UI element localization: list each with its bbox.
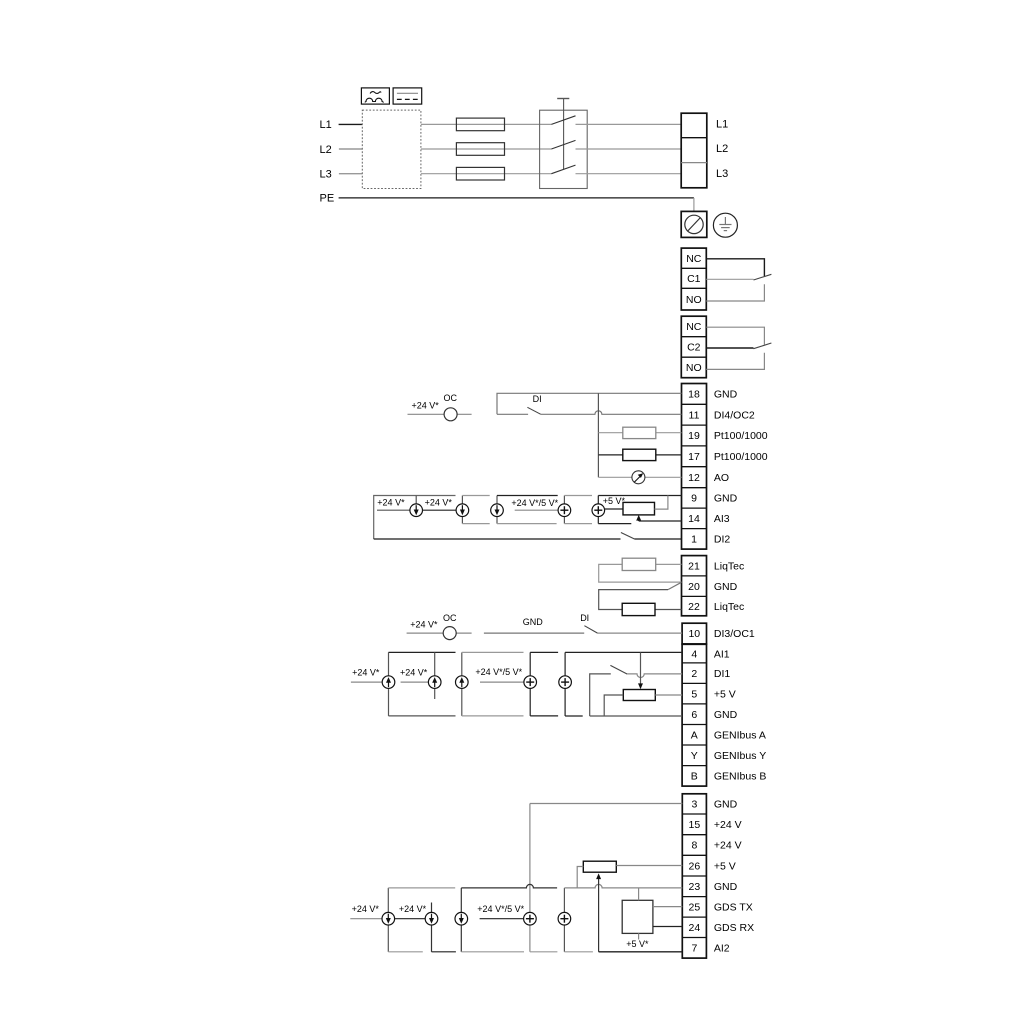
svg-text:Y: Y	[691, 750, 698, 762]
svg-text:DI: DI	[533, 394, 542, 404]
svg-text:L1: L1	[320, 119, 332, 131]
svg-text:10: 10	[688, 628, 700, 640]
svg-text:DI3/OC1: DI3/OC1	[714, 628, 755, 640]
svg-text:DI1: DI1	[714, 668, 731, 680]
svg-text:7: 7	[691, 943, 697, 955]
svg-text:L2: L2	[320, 144, 332, 156]
svg-text:14: 14	[688, 513, 700, 525]
svg-text:6: 6	[691, 709, 697, 721]
svg-text:GND: GND	[714, 581, 738, 593]
svg-text:+5 V: +5 V	[714, 860, 736, 872]
svg-text:AO: AO	[714, 472, 729, 484]
svg-text:+24 V*: +24 V*	[412, 401, 440, 411]
svg-text:2: 2	[691, 668, 697, 680]
svg-text:26: 26	[689, 860, 701, 872]
svg-text:12: 12	[688, 472, 700, 484]
svg-text:GND: GND	[714, 493, 738, 505]
svg-text:22: 22	[688, 601, 700, 613]
svg-text:18: 18	[688, 389, 700, 401]
svg-text:+24 V*: +24 V*	[425, 497, 453, 507]
svg-text:+5 V: +5 V	[714, 688, 736, 700]
svg-text:GENIbus A: GENIbus A	[714, 730, 766, 742]
svg-text:L1: L1	[716, 119, 728, 131]
svg-text:+5 V*: +5 V*	[603, 496, 626, 506]
svg-text:25: 25	[689, 902, 701, 914]
svg-text:+24 V*/5 V*: +24 V*/5 V*	[477, 904, 524, 914]
svg-text:+5 V*: +5 V*	[626, 939, 649, 949]
svg-text:+24 V*: +24 V*	[399, 904, 427, 914]
svg-text:L3: L3	[716, 168, 728, 180]
svg-text:PE: PE	[320, 193, 335, 205]
svg-text:GENIbus Y: GENIbus Y	[714, 750, 766, 762]
svg-text:8: 8	[691, 840, 697, 852]
svg-text:AI2: AI2	[714, 943, 730, 955]
svg-text:GND: GND	[714, 709, 738, 721]
svg-text:LiqTec: LiqTec	[714, 601, 744, 613]
svg-text:NC: NC	[686, 253, 702, 265]
svg-text:9: 9	[691, 493, 697, 505]
svg-text:GND: GND	[523, 617, 544, 627]
svg-text:GDS RX: GDS RX	[714, 922, 754, 934]
svg-text:+24 V*: +24 V*	[377, 497, 405, 507]
svg-text:24: 24	[689, 922, 701, 934]
svg-text:C2: C2	[687, 342, 701, 354]
svg-text:23: 23	[689, 881, 701, 893]
svg-text:21: 21	[688, 561, 700, 573]
svg-text:L3: L3	[320, 169, 332, 181]
svg-text:+24 V*: +24 V*	[352, 904, 380, 914]
svg-text:LiqTec: LiqTec	[714, 561, 744, 573]
svg-text:17: 17	[688, 451, 700, 463]
svg-text:GND: GND	[714, 799, 738, 811]
svg-text:GENIbus B: GENIbus B	[714, 771, 767, 783]
svg-text:1: 1	[691, 534, 697, 546]
svg-text:C1: C1	[687, 273, 701, 285]
svg-text:NO: NO	[686, 362, 702, 374]
svg-text:5: 5	[691, 688, 697, 700]
svg-text:+24 V: +24 V	[714, 840, 742, 852]
svg-text:GND: GND	[714, 881, 738, 893]
svg-text:20: 20	[688, 581, 700, 593]
svg-text:Pt100/1000: Pt100/1000	[714, 451, 768, 463]
svg-text:OC: OC	[443, 613, 457, 623]
svg-text:OC: OC	[444, 393, 458, 403]
svg-text:DI2: DI2	[714, 534, 731, 546]
svg-text:L2: L2	[716, 143, 728, 155]
svg-text:19: 19	[688, 430, 700, 442]
svg-text:+24 V*: +24 V*	[352, 667, 380, 677]
svg-text:+24 V*: +24 V*	[400, 667, 428, 677]
svg-text:+24 V: +24 V	[714, 819, 742, 831]
svg-text:NO: NO	[686, 294, 702, 306]
svg-text:B: B	[691, 771, 698, 783]
svg-text:DI: DI	[580, 613, 589, 623]
svg-text:NC: NC	[686, 321, 702, 333]
svg-text:+24 V*: +24 V*	[410, 620, 438, 630]
svg-text:DI4/OC2: DI4/OC2	[714, 409, 755, 421]
svg-text:4: 4	[691, 648, 697, 660]
svg-text:GND: GND	[714, 389, 738, 401]
svg-text:+24 V*/5 V*: +24 V*/5 V*	[511, 498, 558, 508]
svg-text:Pt100/1000: Pt100/1000	[714, 430, 768, 442]
svg-text:GDS TX: GDS TX	[714, 902, 753, 914]
svg-text:AI3: AI3	[714, 513, 730, 525]
svg-text:+24 V*/5 V*: +24 V*/5 V*	[475, 667, 522, 677]
svg-text:A: A	[691, 730, 698, 742]
svg-text:AI1: AI1	[714, 648, 730, 660]
svg-text:11: 11	[689, 409, 700, 421]
svg-text:15: 15	[689, 819, 701, 831]
svg-text:3: 3	[691, 799, 697, 811]
